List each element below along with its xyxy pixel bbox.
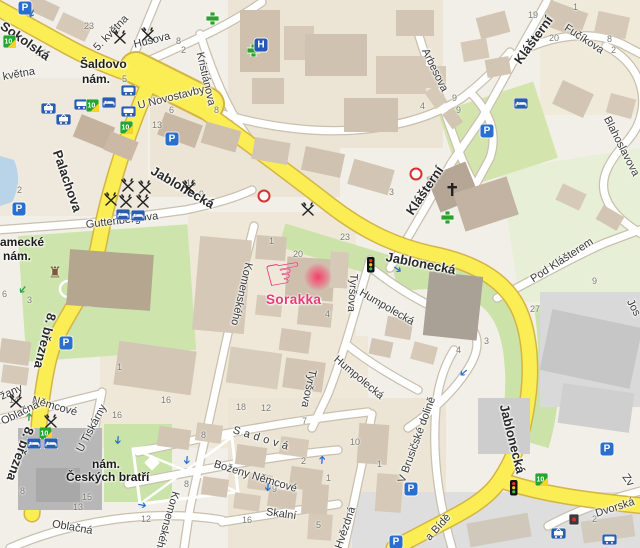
house-number: 3 xyxy=(389,188,394,197)
house-number: 9 xyxy=(592,277,597,286)
house-number: 5 xyxy=(122,75,127,84)
arrowg-icon: ➔ xyxy=(24,412,36,422)
house-number: 2 xyxy=(181,46,186,55)
house-number: 20 xyxy=(549,34,559,43)
house-number: 16 xyxy=(242,516,252,525)
house-number: 6 xyxy=(2,290,7,299)
house-number: 4 xyxy=(325,310,330,319)
house-number: 27 xyxy=(530,305,540,314)
parking-icon[interactable]: P xyxy=(481,125,494,138)
house-number: 8 xyxy=(20,487,25,496)
house-number: 1 xyxy=(117,363,122,372)
map-canvas[interactable]: ☞ Sorakka Sokolskákvětna5. květnaHusovaK… xyxy=(0,0,640,548)
svg-text:10: 10 xyxy=(537,477,545,484)
house-number: 2 xyxy=(301,457,306,466)
house-number: 1 xyxy=(573,3,578,12)
house-number: 23 xyxy=(340,233,350,242)
place-label: amecké xyxy=(0,236,44,248)
house-number: 9 xyxy=(456,106,461,115)
house-number: 3 xyxy=(484,337,489,346)
house-number: 4 xyxy=(456,346,461,355)
house-number: 2 xyxy=(611,46,616,55)
house-number: 7 xyxy=(302,417,307,426)
place-label: nám. xyxy=(92,458,120,470)
noentry-icon xyxy=(410,168,423,181)
parking-icon[interactable]: P xyxy=(405,483,418,496)
noentry-icon xyxy=(258,190,271,203)
house-number: 4 xyxy=(420,102,425,111)
parking-icon[interactable]: P xyxy=(166,133,179,146)
house-number: 19 xyxy=(528,11,538,20)
svg-text:10: 10 xyxy=(5,39,13,46)
svg-text:10: 10 xyxy=(41,431,49,438)
house-number: 9 xyxy=(452,94,457,103)
hospital-icon[interactable]: H xyxy=(255,39,268,52)
house-number: 23 xyxy=(84,22,94,31)
street-label: Tyršova xyxy=(345,273,359,312)
house-number: 3 xyxy=(27,296,32,305)
house-number: 5 xyxy=(316,521,321,530)
house-number: 13 xyxy=(73,503,83,512)
house-number: 1 xyxy=(377,460,382,469)
house-number: 10 xyxy=(350,438,360,447)
house-number: 12 xyxy=(261,404,271,413)
parking-icon[interactable]: P xyxy=(13,203,26,216)
place-label: Šaldovo xyxy=(80,58,127,70)
house-number: 16 xyxy=(161,396,171,405)
svg-text:10: 10 xyxy=(122,125,130,132)
parking-icon[interactable]: P xyxy=(60,337,73,350)
marker-label: Sorakka xyxy=(266,292,321,307)
arrowb-icon: ➔ xyxy=(180,455,192,465)
house-number: 8 xyxy=(201,431,206,440)
marker-glow xyxy=(304,263,332,291)
arrowb-icon: ➔ xyxy=(261,482,273,492)
house-number: 6 xyxy=(169,106,174,115)
castle-icon[interactable]: ♜ xyxy=(48,266,61,281)
house-number: 8 xyxy=(184,480,189,489)
house-number: 1 xyxy=(269,237,274,246)
parking-icon[interactable]: P xyxy=(390,536,403,548)
house-number: 18 xyxy=(236,403,246,412)
house-number: 13 xyxy=(152,121,162,130)
house-number: 2 xyxy=(17,186,22,195)
arrowb-icon: ➔ xyxy=(137,500,148,512)
house-number: 12 xyxy=(141,515,151,524)
arrowb-icon: ➔ xyxy=(317,455,329,465)
place-label: nám. xyxy=(82,73,110,85)
svg-text:10: 10 xyxy=(88,103,96,110)
parking-icon[interactable]: P xyxy=(601,443,614,456)
house-number: 16 xyxy=(112,411,122,420)
arrowb-icon: ➔ xyxy=(111,435,123,445)
place-label: nám. xyxy=(3,250,31,262)
house-number: 8 xyxy=(214,106,219,115)
house-number: 15 xyxy=(82,493,92,502)
house-number: 1 xyxy=(326,474,331,483)
house-number: 8 xyxy=(607,35,612,44)
place-label: Českých bratří xyxy=(66,471,149,483)
